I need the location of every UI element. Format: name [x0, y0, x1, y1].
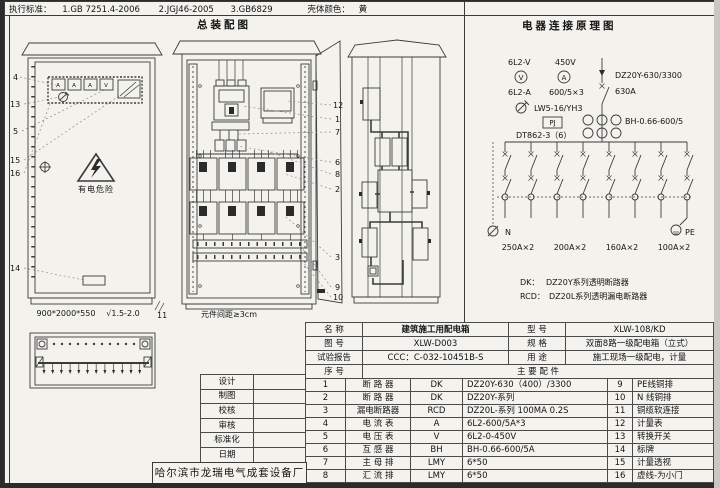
- report-label: 试验报告: [306, 351, 363, 365]
- surface-finish: √1.5-2.0: [106, 309, 139, 318]
- voltmeter-symbol: V: [519, 74, 524, 82]
- part-no-2: 12: [608, 418, 633, 431]
- ammeter-symbol: A: [562, 74, 567, 82]
- cabinet-dimensions: 900*2000*550: [37, 309, 96, 318]
- callout-7: 7: [335, 128, 340, 137]
- table-row: 7 主 母 排 LMY 6*50 15 计量透视: [306, 457, 714, 470]
- part-code: V: [411, 431, 463, 444]
- callout-16: 16: [10, 169, 20, 178]
- pe-label: PE: [685, 228, 695, 237]
- name-label: 名 称: [306, 323, 363, 337]
- part-name-2: 转换开关: [633, 431, 714, 444]
- part-no: 6: [306, 444, 346, 457]
- date-label: 日期: [201, 447, 254, 462]
- part-no: 2: [306, 392, 346, 405]
- voltmeter-label: 6L2-V: [508, 58, 531, 67]
- main-breaker-current: 630A: [615, 87, 636, 96]
- part-name-2: 计量表: [633, 418, 714, 431]
- table-row: 2 断 路 器 DK DZ20Y-系列 10 N 线铜排: [306, 392, 714, 405]
- voltage-rating: 450V: [555, 58, 576, 67]
- spec-value: 双面8路一级配电箱（立式）: [566, 337, 714, 351]
- branch-circuit-7: [658, 142, 667, 218]
- meter-panel: A A A V: [48, 77, 142, 103]
- branch-circuit-1: [502, 142, 511, 218]
- spec-label: 规 格: [509, 337, 566, 351]
- callout-8: 8: [335, 170, 340, 179]
- callout-13: 13: [10, 100, 20, 109]
- selector-switch-icon: [516, 101, 529, 114]
- reviewer-label: 审核: [201, 418, 254, 433]
- callout-2: 2: [335, 185, 340, 194]
- branch-circuit-8: [684, 142, 693, 218]
- table-row: 8 汇 流 排 LMY 6*50 16 虚线-为小门: [306, 470, 714, 483]
- pj-label: PJ: [549, 119, 555, 127]
- legend-rcd-value: DZ20L系列透明漏电断路器: [549, 291, 647, 301]
- scanned-drawing-sheet: 执行标准： 1.GB 7251.4-2006 2.JGJ46-2005 3.GB…: [0, 0, 720, 488]
- part-spec: 6*50: [463, 457, 608, 470]
- designer-value: [254, 375, 306, 390]
- meter-window: [118, 80, 140, 98]
- busbar-and-cts: [196, 122, 298, 154]
- schematic-diagram: 6L2-V 450V V A 6L2-A 600/5×3 LW5-16/YH3 …: [463, 28, 713, 322]
- cabinet-cap: [348, 40, 446, 57]
- report-value: CCC：C-032-10451B-S: [363, 351, 509, 365]
- designer-label: 设计: [201, 375, 254, 390]
- checker-value: [254, 404, 306, 419]
- door-handle: [317, 289, 325, 293]
- drafter-label: 制图: [201, 389, 254, 404]
- busbar-detail-view: [24, 330, 166, 392]
- callout-10: 10: [333, 293, 343, 302]
- part-name: 断 路 器: [346, 392, 411, 405]
- main-breaker: [214, 80, 249, 120]
- part-name: 电 流 表: [346, 418, 411, 431]
- part-code: DK: [411, 379, 463, 392]
- neutral-busbar: [193, 240, 307, 248]
- front-callouts: 4 13 5 15 16 14: [10, 73, 20, 273]
- part-name: 断 路 器: [346, 379, 411, 392]
- use-value: 施工现场一级配电，计量: [566, 351, 714, 365]
- callout-4: 4: [13, 73, 18, 82]
- part-no-2: 10: [608, 392, 633, 405]
- incomer: DZ20Y-630/3300 630A: [599, 58, 682, 142]
- part-name: 主 母 排: [346, 457, 411, 470]
- drawing-no-label: 图 号: [306, 337, 363, 351]
- front-view: 4 13 5 15 16 14 A A A V: [8, 28, 174, 320]
- warning-text: 有电危险: [78, 184, 114, 194]
- standards-label: 执行标准：: [9, 5, 52, 15]
- part-spec: 6*50: [463, 470, 608, 483]
- ammeter-3: A: [88, 83, 92, 89]
- part-name-2: 虚线-为小门: [633, 470, 714, 483]
- shell-color-value: 黄: [359, 5, 368, 15]
- part-no: 1: [306, 379, 346, 392]
- table-row: 1 断 路 器 DK DZ20Y-630（400）/3300 9 PE线铜排: [306, 379, 714, 392]
- part-spec: 6L2-0-450V: [463, 431, 608, 444]
- branch-ratings: 250A×2 200A×2 160A×2 100A×2: [502, 243, 691, 252]
- use-label: 用 途: [509, 351, 566, 365]
- table-row: 5 电 压 表 V 6L2-0-450V 13 转换开关: [306, 431, 714, 444]
- seq-header: 序 号: [306, 365, 363, 379]
- part-no: 7: [306, 457, 346, 470]
- part-name-2: 标牌: [633, 444, 714, 457]
- callout-3: 3: [335, 253, 340, 262]
- part-no: 4: [306, 418, 346, 431]
- scan-edge-bottom: [0, 483, 720, 488]
- part-code: A: [411, 418, 463, 431]
- branch-circuit-6: [632, 142, 641, 218]
- warning-triangle-icon: [78, 154, 114, 181]
- selector-switch-icon: [59, 92, 70, 102]
- branch-circuit-3: [554, 142, 563, 218]
- incoming-cables: [219, 60, 243, 80]
- standards-label: 标准化: [201, 433, 254, 448]
- busbar-with-terminals: [36, 357, 151, 374]
- legend-rcd-key: RCD：: [520, 292, 545, 301]
- rating-160a: 160A×2: [606, 243, 639, 252]
- supply-arrow: [599, 70, 605, 76]
- ct-ratio: 600/5×3: [549, 88, 584, 97]
- strip-divider: [5, 15, 714, 16]
- parts-header: 主 要 配 件: [363, 365, 714, 379]
- callout-9: 9: [335, 283, 340, 292]
- part-spec: DZ20Y-630（400）/3300: [463, 379, 608, 392]
- callout-11: 11: [157, 311, 167, 320]
- branch-circuit-5: [606, 142, 615, 218]
- legend-dk-key: DK：: [520, 278, 539, 287]
- nameplate: [83, 276, 105, 285]
- door-lock-icon: [39, 161, 51, 173]
- part-name: 漏电断路器: [346, 405, 411, 418]
- checker-label: 校核: [201, 404, 254, 419]
- standard-3: 3.GB6829: [231, 5, 273, 15]
- standard-2: 2.JGJ46-2005: [159, 5, 214, 15]
- part-no-2: 14: [608, 444, 633, 457]
- ammeter-1: A: [56, 83, 60, 89]
- title-block: 设计 制图 校核 审核 标准化 日期: [200, 374, 306, 463]
- part-name: 互 感 器: [346, 444, 411, 457]
- part-name: 电 压 表: [346, 431, 411, 444]
- part-code: BH: [411, 444, 463, 457]
- part-code: DK: [411, 392, 463, 405]
- legend-dk-value: DZ20Y系列透明断路器: [546, 277, 629, 287]
- spacing-note: 元件间距≥3cm: [201, 309, 257, 319]
- reviewer-value: [254, 418, 306, 433]
- date-value: [254, 447, 306, 462]
- part-no-2: 9: [608, 379, 633, 392]
- breaker-row-2: [190, 190, 304, 240]
- part-spec: DZ20L-系列 100MA 0.2S: [463, 405, 608, 418]
- side-wiring-view: [346, 26, 464, 322]
- n-label: N: [505, 228, 511, 237]
- part-no-2: 16: [608, 470, 633, 483]
- part-name-2: PE线铜排: [633, 379, 714, 392]
- scan-edge-right: [714, 0, 720, 488]
- part-no: 3: [306, 405, 346, 418]
- parts-table: 1 断 路 器 DK DZ20Y-630（400）/3300 9 PE线铜排 2…: [305, 378, 714, 483]
- rating-250a: 250A×2: [502, 243, 535, 252]
- breaker-row-1: [190, 150, 304, 190]
- standards-value: [254, 433, 306, 448]
- part-no-2: 13: [608, 431, 633, 444]
- table-row: 4 电 流 表 A 6L2-600/5A*3 12 计量表: [306, 418, 714, 431]
- part-no-2: 15: [608, 457, 633, 470]
- part-name-2: 铜缆软连接: [633, 405, 714, 418]
- cabinet-cap: [173, 41, 321, 54]
- main-breaker-model: DZ20Y-630/3300: [615, 71, 682, 80]
- energy-meter-model: DT862-3（6）: [516, 131, 571, 140]
- branch-circuit-4: [580, 142, 589, 218]
- branch-circuit-2: [528, 142, 537, 218]
- drafter-value: [254, 389, 306, 404]
- standards-strip: 执行标准： 1.GB 7251.4-2006 2.JGJ46-2005 3.GB…: [9, 3, 367, 15]
- part-no: 5: [306, 431, 346, 444]
- drawing-no-value: XLW-D003: [363, 337, 509, 351]
- schematic-legend: DK： DZ20Y系列透明断路器 RCD： DZ20L系列透明漏电断路器: [520, 277, 647, 301]
- callout-14: 14: [10, 264, 20, 273]
- part-spec: DZ20Y-系列: [463, 392, 608, 405]
- rating-200a: 200A×2: [554, 243, 587, 252]
- table-row: 3 漏电断路器 RCD DZ20L-系列 100MA 0.2S 11 铜缆软连接: [306, 405, 714, 418]
- energy-meter-box: [261, 88, 294, 123]
- callout-5: 5: [13, 127, 18, 136]
- current-transformers: BH-0.66-600/5: [583, 115, 683, 138]
- part-code: LMY: [411, 470, 463, 483]
- standard-1: 1.GB 7251.4-2006: [62, 5, 140, 15]
- voltmeter: V: [104, 83, 108, 89]
- scan-edge-left: [0, 0, 4, 488]
- part-name: 汇 流 排: [346, 470, 411, 483]
- part-no: 8: [306, 470, 346, 483]
- model-label: 型 号: [509, 323, 566, 337]
- wired-components: [359, 88, 431, 276]
- part-name-2: 计量透视: [633, 457, 714, 470]
- part-spec: 6L2-600/5A*3: [463, 418, 608, 431]
- ammeter-2: A: [72, 83, 76, 89]
- ct-model: BH-0.66-600/5: [625, 117, 683, 126]
- part-name-2: N 线铜排: [633, 392, 714, 405]
- callout-15: 15: [10, 156, 20, 165]
- internal-view: 12 1 7 6 8 2 3 9 10 元件间距≥3cm: [167, 26, 346, 322]
- part-code: LMY: [411, 457, 463, 470]
- part-no-2: 11: [608, 405, 633, 418]
- callout-1: 1: [335, 115, 340, 124]
- metering-group: 6L2-V 450V V A 6L2-A 600/5×3 LW5-16/YH3 …: [508, 58, 584, 140]
- model-value: XLW-108/KD: [566, 323, 714, 337]
- pe-terminal: PE: [671, 218, 695, 237]
- shell-color-label: 壳体颜色：: [307, 5, 350, 15]
- product-name: 建筑施工用配电箱: [363, 323, 509, 337]
- part-code: RCD: [411, 405, 463, 418]
- callout-6: 6: [335, 158, 340, 167]
- branch-circuits: [497, 142, 693, 218]
- part-spec: BH-0.66-600/5A: [463, 444, 608, 457]
- manufacturer-name: 哈尔滨市龙瑞电气成套设备厂: [152, 462, 307, 485]
- ammeter-label: 6L2-A: [508, 88, 531, 97]
- info-table: 名 称 建筑施工用配电箱 型 号 XLW-108/KD 图 号 XLW-D003…: [305, 322, 714, 379]
- cabinet-cap: [22, 43, 162, 55]
- pe-busbar: [193, 253, 307, 261]
- table-row: 6 互 感 器 BH BH-0.66-600/5A 14 标牌: [306, 444, 714, 457]
- selector-model: LW5-16/YH3: [534, 104, 582, 113]
- rating-100a: 100A×2: [658, 243, 691, 252]
- callout-12: 12: [333, 101, 343, 110]
